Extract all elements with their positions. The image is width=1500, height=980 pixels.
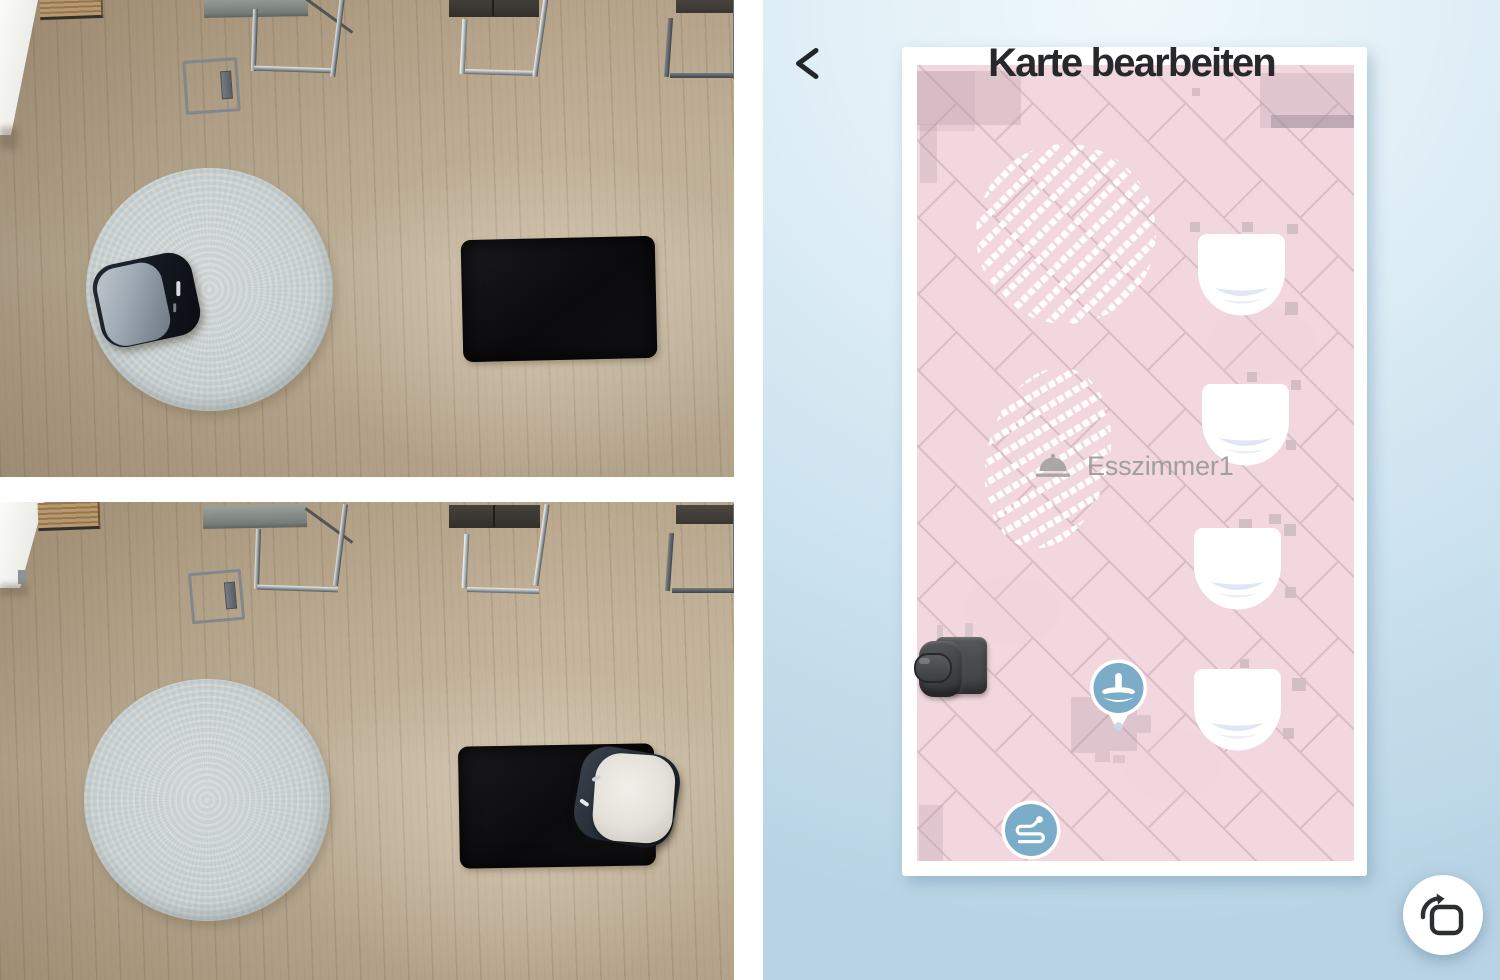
svg-text:Esszimmer1: Esszimmer1 xyxy=(1087,451,1234,481)
